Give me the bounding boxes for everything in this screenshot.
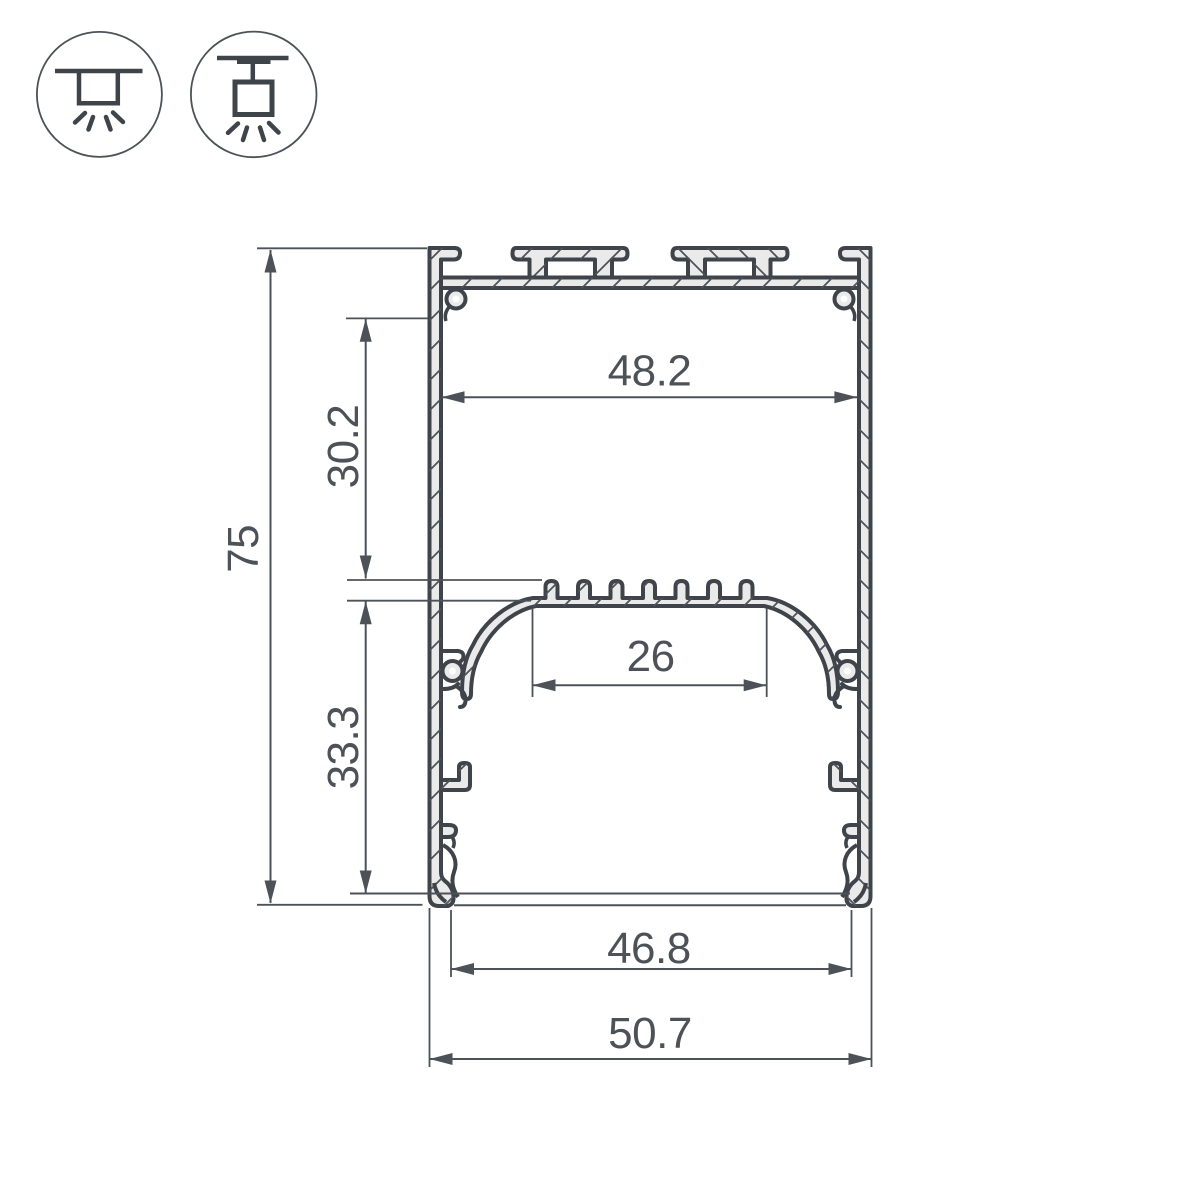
svg-text:26: 26 [627,632,675,681]
svg-text:33.3: 33.3 [319,706,368,790]
svg-text:46.8: 46.8 [607,924,691,973]
svg-text:30.2: 30.2 [319,405,368,489]
svg-text:75: 75 [219,525,268,573]
svg-text:50.7: 50.7 [608,1009,692,1058]
svg-text:48.2: 48.2 [608,347,692,396]
